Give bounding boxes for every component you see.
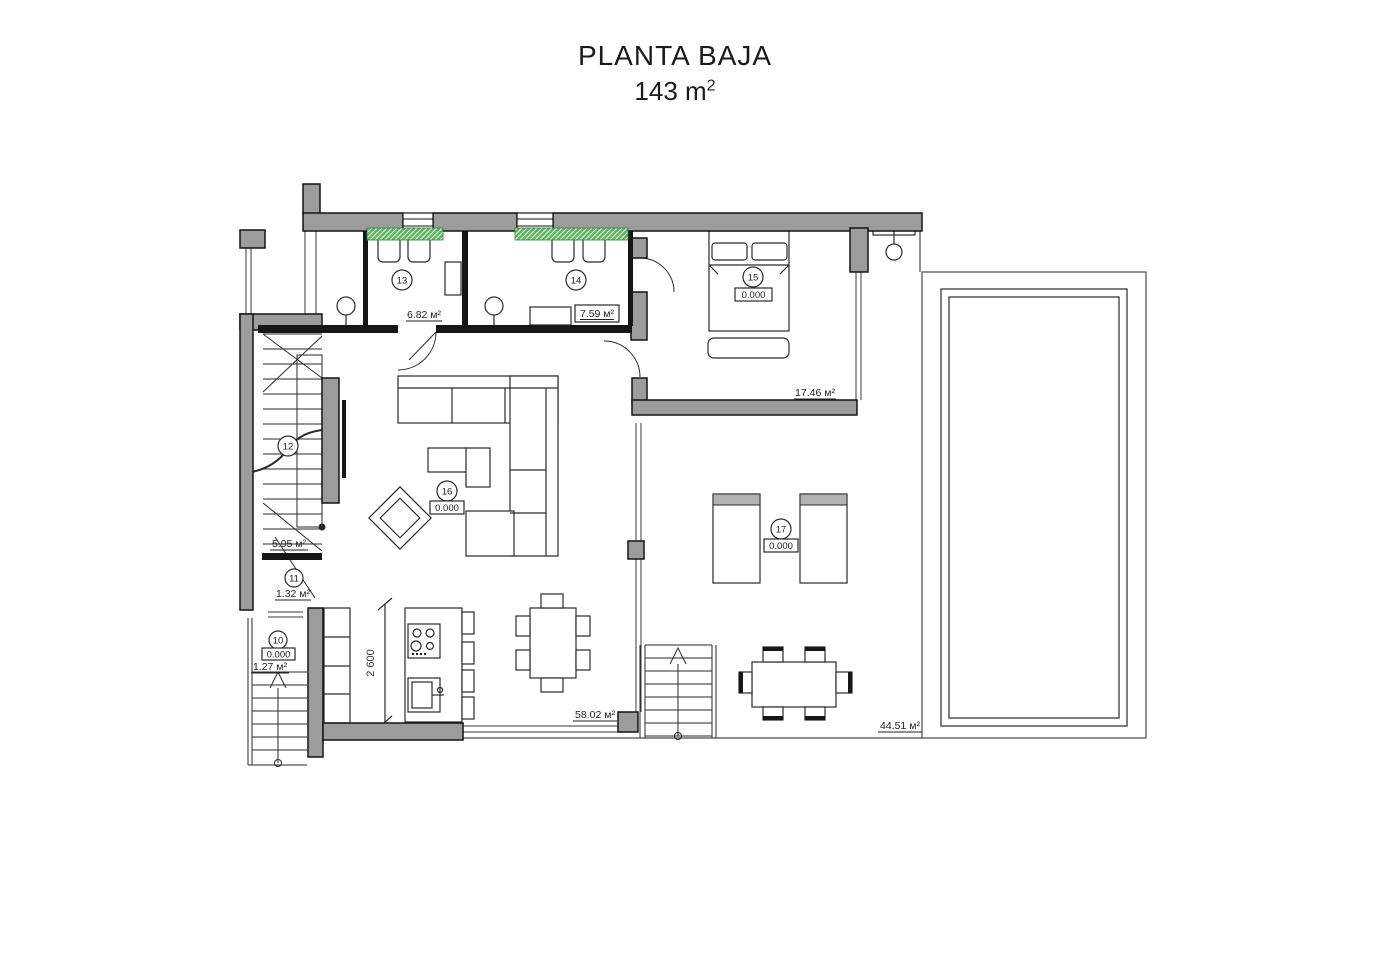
svg-text:16: 16	[442, 487, 453, 498]
dining-outdoor	[739, 647, 852, 720]
svg-text:0.000: 0.000	[435, 503, 459, 514]
kitchen: 2 600	[324, 598, 474, 728]
pendant-light-icon	[485, 297, 503, 315]
living-16	[369, 376, 558, 556]
area-label-11: 1.32 м²	[276, 588, 311, 600]
area-label-10: 1.27 м²	[253, 661, 288, 673]
terrace-outline	[922, 272, 1146, 738]
chair	[576, 616, 590, 636]
door-arc-bath14	[604, 341, 640, 377]
stairs-exterior-terrace	[640, 645, 716, 740]
pendant-light-icon	[337, 297, 355, 315]
sun-lounger	[713, 494, 760, 583]
kitchen-island	[405, 608, 462, 722]
sofa-vertical	[510, 376, 558, 556]
svg-text:0.000: 0.000	[769, 541, 793, 552]
bar-stool	[462, 670, 474, 692]
chair	[541, 678, 563, 692]
pool-outer	[941, 289, 1127, 726]
chair	[541, 594, 563, 608]
bar-stool	[462, 642, 474, 664]
area-label-16: 58.02 м²	[575, 709, 615, 721]
cabinet	[530, 307, 571, 325]
dining-table	[530, 608, 576, 678]
svg-text:13: 13	[397, 276, 408, 287]
area-label-17: 44.51 м²	[880, 720, 920, 732]
dining-indoor	[516, 594, 590, 692]
chair	[576, 650, 590, 670]
svg-text:0.000: 0.000	[742, 290, 766, 301]
dining-table	[752, 662, 836, 707]
chair	[516, 616, 530, 636]
shower-head	[886, 244, 902, 260]
coffee-table	[428, 448, 467, 472]
glass-block-strip	[367, 228, 443, 240]
area-label-13: 6.82 м²	[407, 309, 442, 321]
svg-text:12: 12	[283, 442, 294, 453]
chair	[516, 650, 530, 670]
dimension-label: 2 600	[365, 649, 377, 677]
coffee-table	[466, 448, 490, 487]
sun-lounger	[800, 494, 847, 583]
svg-text:11: 11	[289, 574, 299, 585]
floor-plan-drawing: 2 600	[0, 0, 1400, 957]
dimension-2600: 2 600	[365, 598, 392, 728]
glass-block-strip	[515, 228, 628, 240]
area-label-15: 17.46 м²	[795, 387, 835, 399]
door-arc-bedroom	[640, 258, 674, 292]
svg-text:7.59 м²: 7.59 м²	[580, 308, 615, 320]
svg-text:17: 17	[776, 525, 787, 536]
svg-text:0.000: 0.000	[267, 650, 291, 661]
svg-text:14: 14	[571, 276, 582, 287]
floor-plan-page: PLANTA BAJA 143 m2	[0, 0, 1400, 957]
svg-text:10: 10	[273, 636, 284, 647]
cabinet	[445, 262, 461, 295]
bar-stool	[462, 697, 474, 719]
svg-text:15: 15	[748, 273, 759, 284]
bench	[708, 338, 789, 358]
pool-inner	[949, 297, 1119, 718]
sofa-chaise	[466, 511, 514, 556]
area-label-12: 5.95 м²	[272, 538, 307, 550]
armchair	[369, 487, 431, 549]
bar-stool	[462, 612, 474, 634]
